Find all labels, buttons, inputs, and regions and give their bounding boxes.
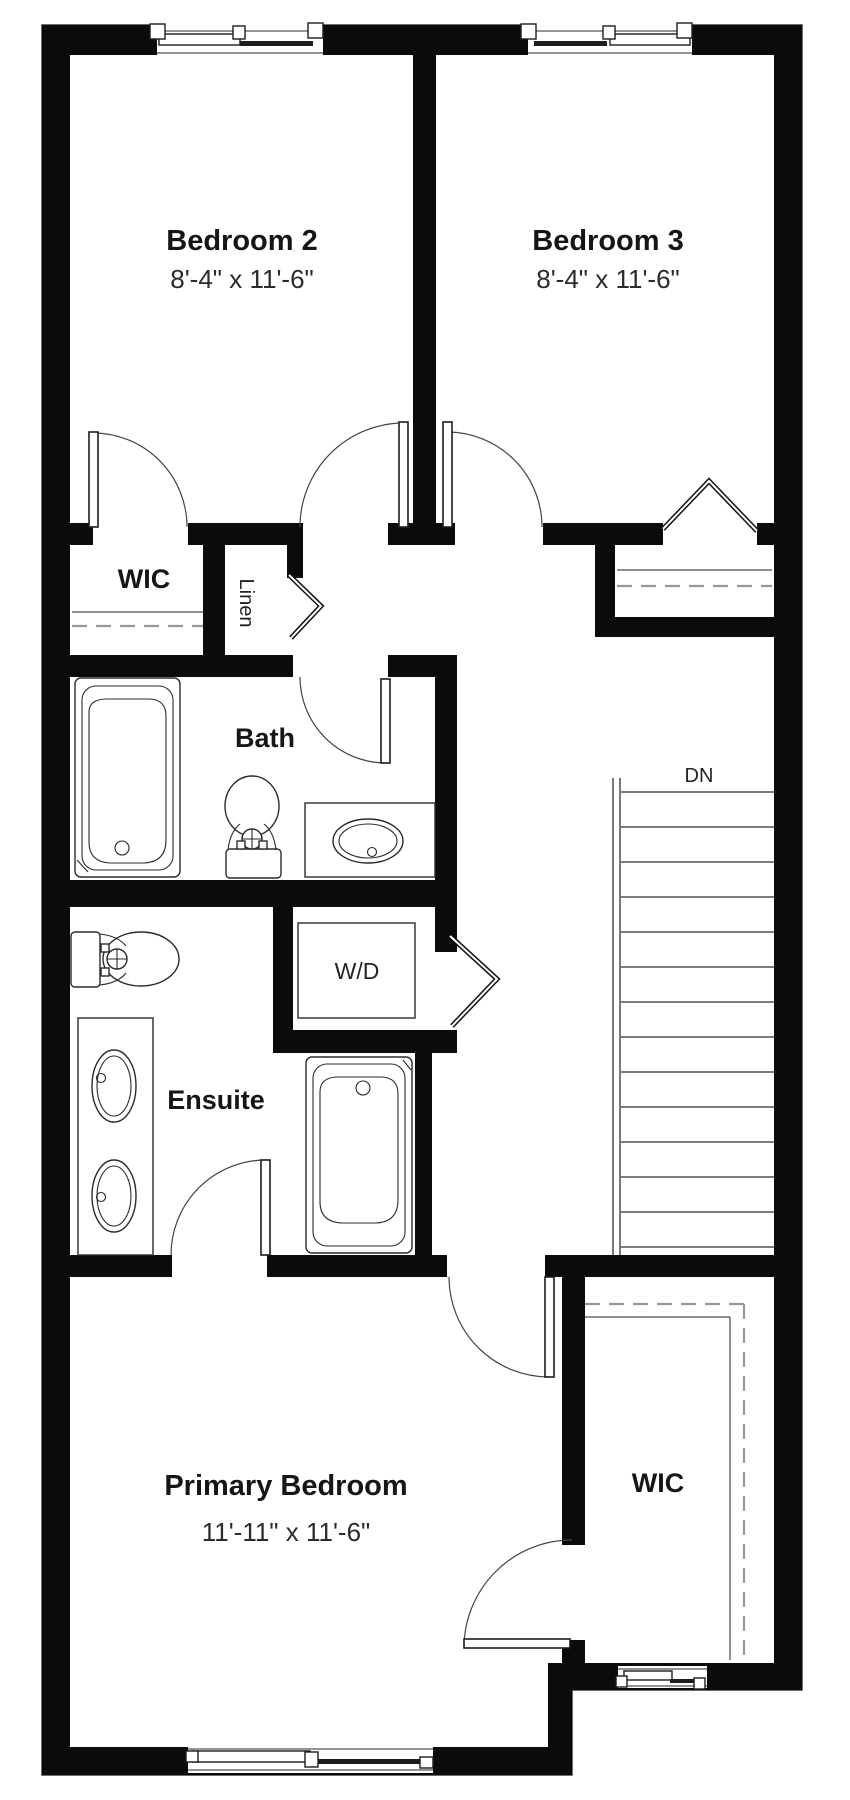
floor-plan-drawing: Bedroom 2 8'-4" x 11'-6" Bedroom 3 8'-4"… (0, 0, 850, 1800)
door-primary-bedroom (449, 1277, 554, 1377)
primary-bedroom-name-label: Primary Bedroom (164, 1470, 407, 1502)
door-bedroom2 (300, 422, 408, 527)
bifold-door-bedroom3-closet (663, 481, 757, 531)
bifold-door-linen (289, 575, 321, 638)
toilet-ensuite (71, 932, 179, 987)
bedroom2-name-label: Bedroom 2 (166, 225, 317, 257)
bath-label: Bath (235, 723, 295, 753)
fixtures (71, 678, 435, 1255)
door-ensuite (171, 1160, 270, 1255)
ensuite-label: Ensuite (167, 1085, 265, 1115)
window-wic (616, 1666, 707, 1689)
bifold-door-wd (450, 936, 497, 1026)
wic-upper-label: WIC (118, 564, 170, 594)
wd-label: W/D (335, 958, 380, 984)
door-bedroom3 (443, 422, 542, 527)
toilet-bath (225, 776, 281, 878)
wic-primary-label: WIC (632, 1468, 684, 1498)
primary-bedroom-dims-label: 11'-11" x 11'-6" (202, 1517, 371, 1547)
bedroom3-dims-label: 8'-4" x 11'-6" (536, 264, 680, 294)
sink-vanity-ensuite (78, 1018, 153, 1255)
door-wic-primary (464, 1540, 572, 1648)
bedroom3-name-label: Bedroom 3 (532, 225, 683, 257)
window-bedroom2 (150, 23, 323, 58)
door-bath (300, 677, 390, 763)
window-bedroom3 (521, 23, 692, 58)
floor-plan-page: Bedroom 2 8'-4" x 11'-6" Bedroom 3 8'-4"… (0, 0, 850, 1800)
bathtub-bath (75, 678, 180, 877)
stairs-down (613, 778, 774, 1255)
window-primary-bedroom (186, 1746, 433, 1773)
stairs-dn-label: DN (685, 765, 714, 787)
door-wic-upper (89, 432, 187, 527)
linen-label: Linen (235, 579, 257, 628)
bathtub-ensuite (306, 1057, 412, 1253)
bedroom2-dims-label: 8'-4" x 11'-6" (170, 264, 314, 294)
sink-vanity-bath (305, 803, 435, 877)
